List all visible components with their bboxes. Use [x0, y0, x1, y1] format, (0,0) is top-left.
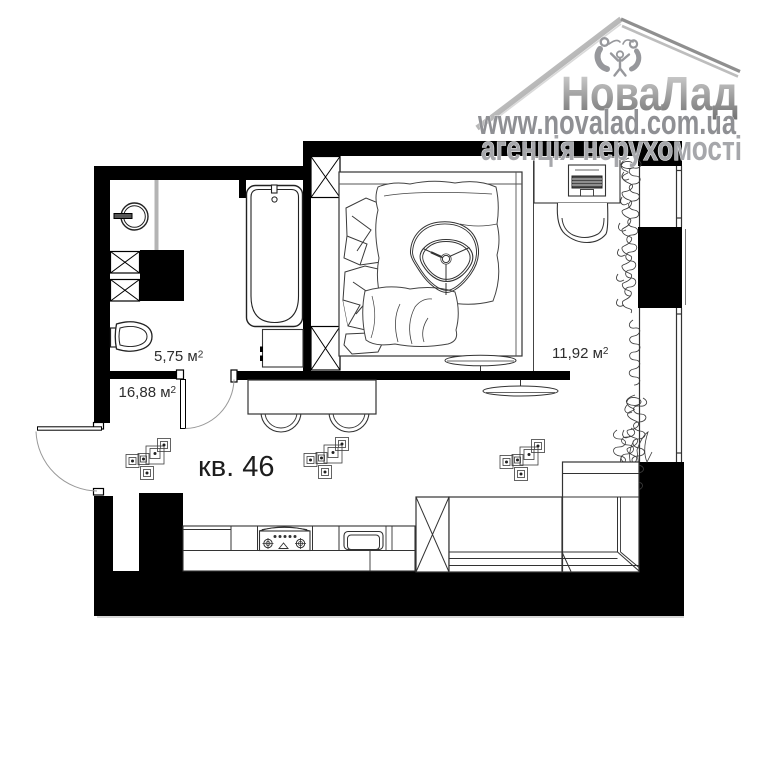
svg-text:11,92 м2: 11,92 м2 — [552, 345, 609, 362]
svg-text:агенція нерухомості: агенція нерухомості — [481, 130, 742, 168]
svg-text:16,88 м2: 16,88 м2 — [119, 384, 177, 401]
svg-text:5,75 м2: 5,75 м2 — [154, 348, 204, 365]
svg-text:кв. 46: кв. 46 — [198, 451, 274, 483]
